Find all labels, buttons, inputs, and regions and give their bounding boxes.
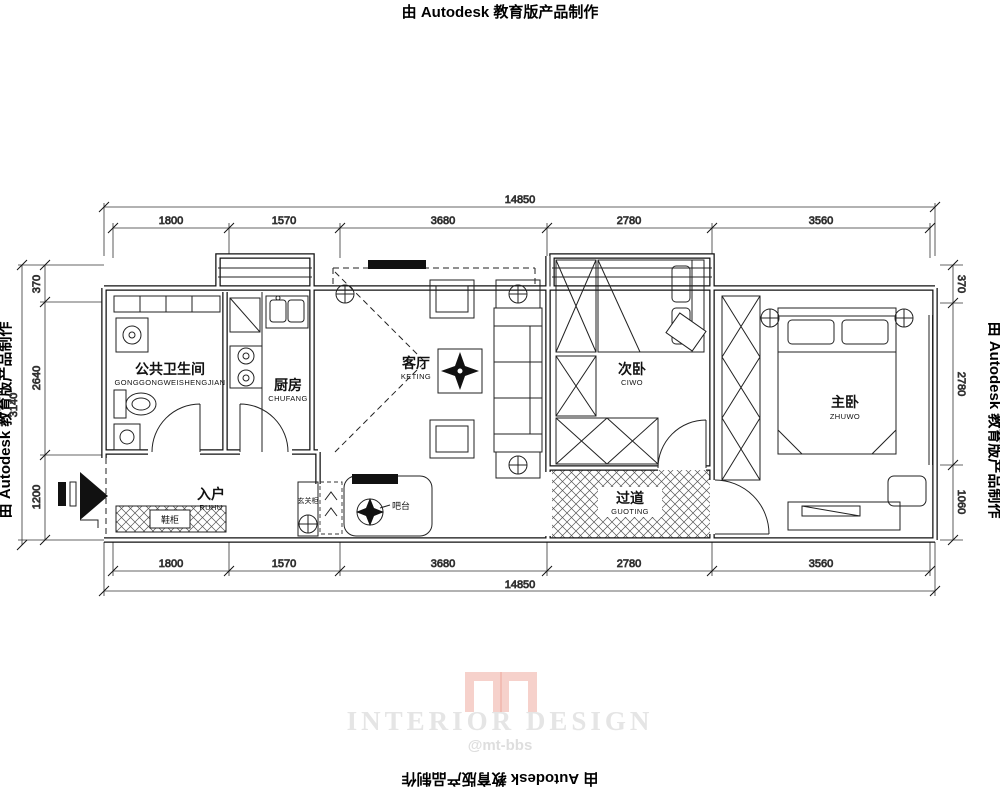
- plant-icon: [356, 498, 384, 526]
- logo-subtitle: @mt-bbs: [468, 737, 533, 754]
- kitchen-label: 厨房 CHUFANG: [268, 377, 307, 403]
- master-name: 主卧: [831, 394, 859, 410]
- dimension-bottom: 14850 1800 1570 3680 2780 3560: [99, 542, 940, 596]
- dimension-right: 370 2780 1060: [940, 260, 967, 545]
- master-bed: [778, 308, 896, 454]
- entrance-arrow: [58, 472, 108, 528]
- kitchen-pinyin: CHUFANG: [268, 394, 307, 403]
- center-watermark-logo: INTERIOR DESIGN @mt-bbs: [347, 672, 654, 754]
- stove: [230, 346, 262, 388]
- bathroom-label: 公共卫生间 GONGGONGWEISHENGJIAN: [115, 361, 226, 387]
- floor-plan-page: 由 Autodesk 教育版产品制作 由 Autodesk 教育版产品制作 由 …: [0, 0, 1000, 800]
- toilet-bowl: [126, 393, 156, 415]
- dim-left-3: 1200: [31, 485, 43, 509]
- kitchen-fixtures: [230, 292, 308, 452]
- bar-label: 吧台: [392, 500, 410, 511]
- entry-name: 入户: [197, 486, 225, 502]
- washing-machine: [116, 318, 148, 352]
- master-label: 主卧 ZHUWO: [830, 394, 860, 421]
- entry-pinyin: RUHU: [199, 503, 222, 512]
- master-door: [715, 480, 769, 534]
- dim-top-1: 1800: [159, 215, 183, 227]
- living-pinyin: KETING: [401, 372, 431, 381]
- watermark-top: 由 Autodesk 教育版产品制作: [402, 3, 599, 21]
- dim-top-3: 3680: [431, 215, 455, 227]
- living-name: 客厅: [401, 355, 430, 371]
- ceiling-lamp-icon: [336, 285, 354, 303]
- watermark-right: 由 Autodesk 教育版产品制作: [986, 322, 1000, 519]
- entry-cabinet-label: 玄关柜: [298, 496, 319, 505]
- bar-table: [352, 474, 398, 484]
- dim-bottom-1: 1800: [159, 558, 183, 570]
- speaker-icon-top: [509, 285, 527, 303]
- kitchen-door: [240, 404, 288, 452]
- dim-overall-left: 3140: [8, 393, 20, 417]
- bathroom-name: 公共卫生间: [135, 361, 205, 377]
- watermark-bottom: 由 Autodesk 教育版产品制作: [402, 770, 599, 788]
- dim-left-2: 2640: [31, 366, 43, 390]
- watermark-left: 由 Autodesk 教育版产品制作: [0, 322, 14, 519]
- floor-plan-drawing: 由 Autodesk 教育版产品制作 由 Autodesk 教育版产品制作 由 …: [0, 0, 1000, 800]
- sofa-armrest-top: [494, 308, 542, 326]
- entry-direction-arrow-icon: [80, 472, 108, 520]
- bedside-lamp-icon: [761, 309, 779, 327]
- dim-bottom-3: 3680: [431, 558, 455, 570]
- hallway-label: 过道 GUOTING: [598, 487, 662, 517]
- bedroom2-label: 次卧 CIWO: [618, 361, 646, 387]
- speaker-icon-bottom: [509, 456, 527, 474]
- ac-unit: [368, 260, 426, 269]
- dim-left-1: 370: [31, 275, 43, 293]
- kitchen-sink: [266, 296, 308, 328]
- cabinet-lamp-icon: [299, 515, 317, 533]
- dim-top-2: 1570: [272, 215, 296, 227]
- pillow: [842, 320, 888, 344]
- dim-bottom-4: 2780: [617, 558, 641, 570]
- entry-furniture: [116, 474, 432, 536]
- dim-top-5: 3560: [809, 215, 833, 227]
- dim-bottom-5: 3560: [809, 558, 833, 570]
- bedroom2-name: 次卧: [618, 361, 646, 377]
- projection-dashed-lines: [106, 268, 535, 538]
- bathroom-pinyin: GONGGONGWEISHENGJIAN: [115, 378, 226, 387]
- bedroom2-door: [658, 420, 706, 468]
- hallway-name: 过道: [616, 490, 644, 506]
- hallway-pinyin: GUOTING: [611, 507, 649, 516]
- pillow: [672, 266, 690, 302]
- dim-bottom-2: 1570: [272, 558, 296, 570]
- master-pinyin: ZHUWO: [830, 412, 860, 421]
- corner-sink: [114, 424, 140, 450]
- dim-right-3: 1060: [955, 490, 967, 514]
- dim-top-4: 2780: [617, 215, 641, 227]
- dim-overall-top: 14850: [505, 194, 536, 206]
- living-furniture: [336, 260, 542, 478]
- toilet-tank: [114, 390, 126, 418]
- dim-right-1: 370: [955, 275, 967, 293]
- kitchen-name: 厨房: [274, 377, 302, 393]
- living-label: 客厅 KETING: [401, 355, 431, 381]
- dim-right-2: 2780: [955, 372, 967, 396]
- pillow: [788, 320, 834, 344]
- dim-overall-bottom: 14850: [505, 579, 536, 591]
- sofa-armrest-bottom: [494, 434, 542, 452]
- logo-title: INTERIOR DESIGN: [347, 706, 654, 736]
- bedside-lamp-icon: [895, 309, 913, 327]
- bathroom-door: [152, 404, 200, 452]
- wardrobe-bottom: [556, 418, 658, 464]
- shoe-cabinet-label: 鞋柜: [161, 514, 179, 525]
- sofa-seat: [494, 326, 542, 434]
- bedroom2-pinyin: CIWO: [621, 378, 643, 387]
- dimension-top: 14850 1800 1570 3680 2780 3560: [99, 194, 940, 258]
